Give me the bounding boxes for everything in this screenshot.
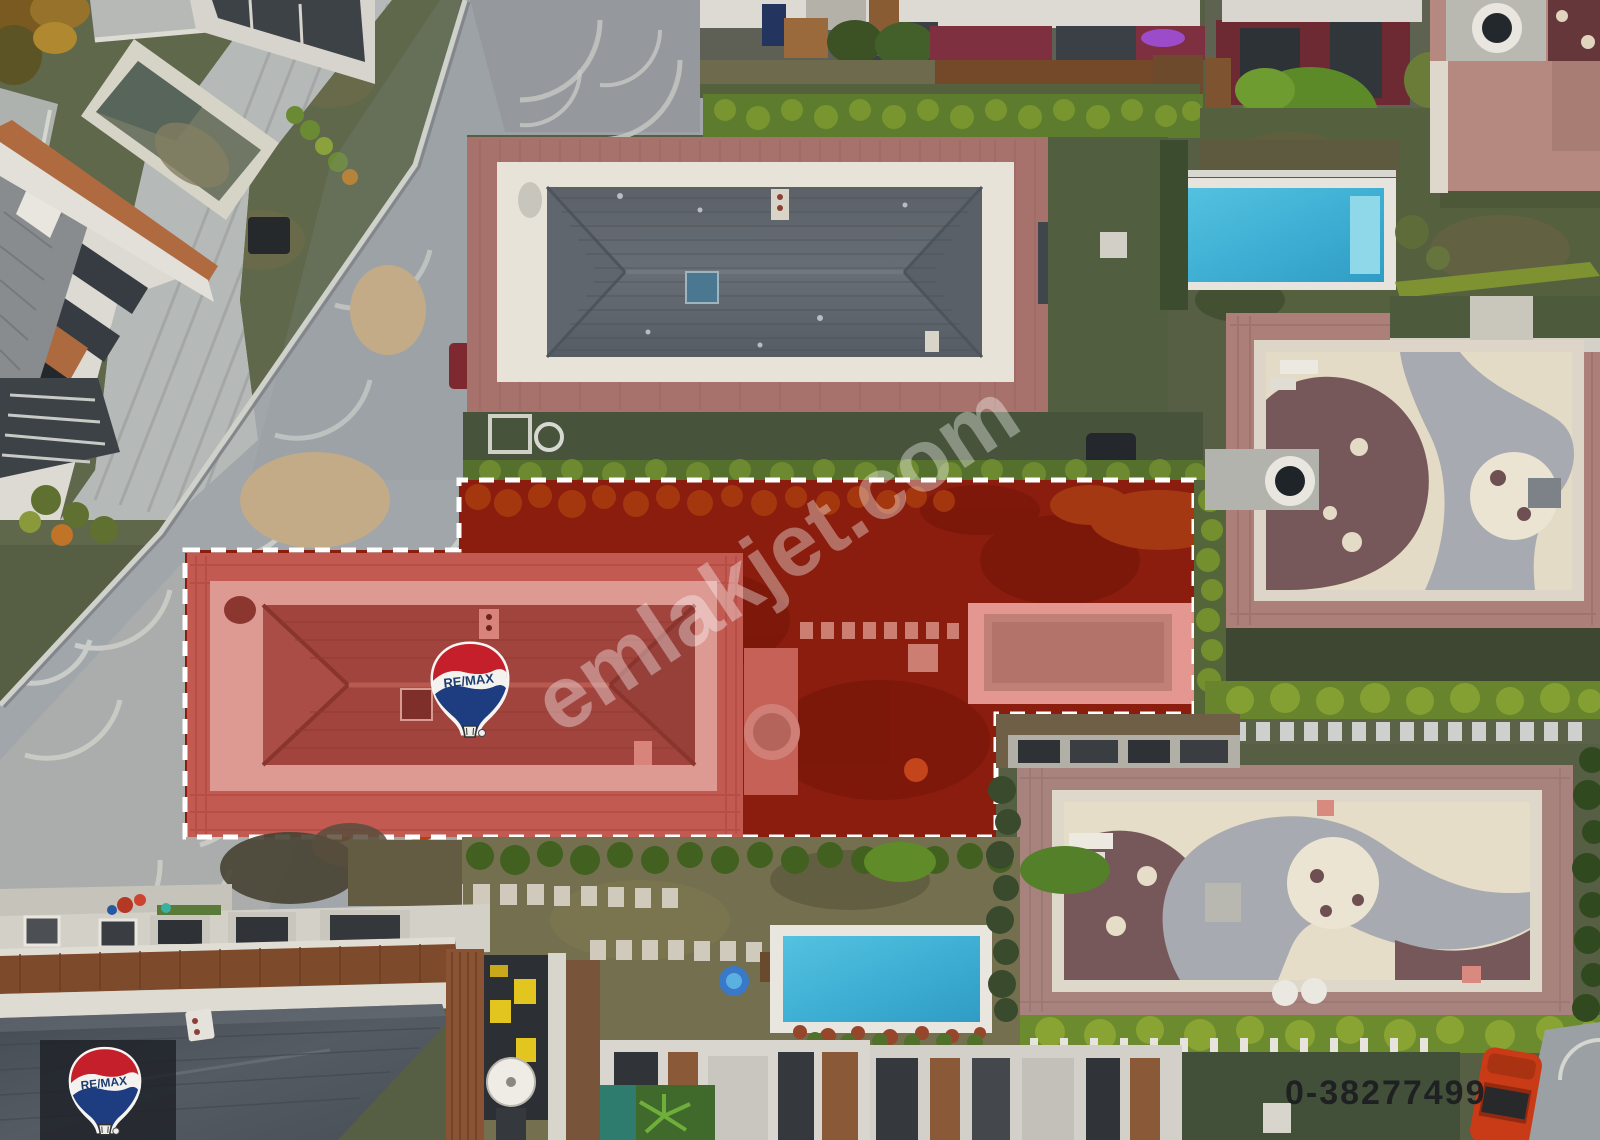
svg-text:0-38277499: 0-38277499 bbox=[1285, 1074, 1487, 1112]
